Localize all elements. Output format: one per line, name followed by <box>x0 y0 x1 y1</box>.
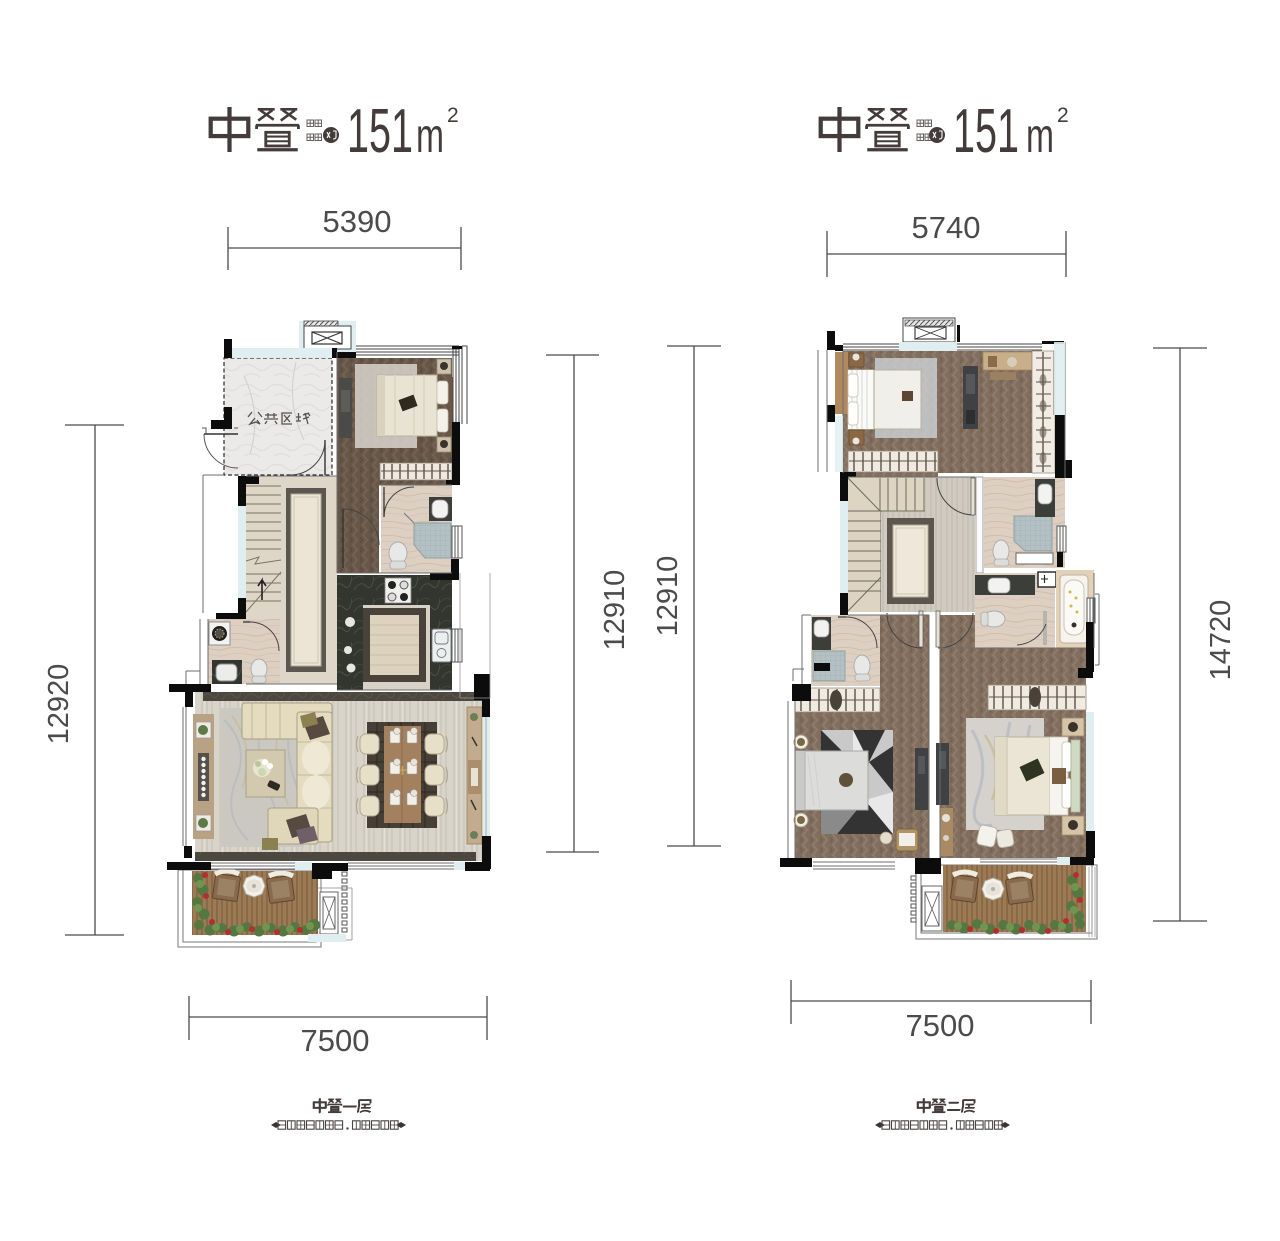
svg-text:m: m <box>1026 110 1054 163</box>
svg-text:7500: 7500 <box>301 1023 370 1058</box>
svg-text:2: 2 <box>1057 104 1069 127</box>
svg-text:14720: 14720 <box>1205 600 1237 681</box>
svg-text:5390: 5390 <box>323 204 392 239</box>
svg-text:m: m <box>416 110 444 163</box>
svg-text:12910: 12910 <box>652 556 684 637</box>
svg-text:2: 2 <box>447 104 459 127</box>
svg-text:151: 151 <box>347 97 413 166</box>
svg-text:7500: 7500 <box>906 1008 975 1043</box>
svg-text:12910: 12910 <box>599 570 631 651</box>
svg-text:5740: 5740 <box>912 210 981 245</box>
svg-text:151: 151 <box>953 97 1019 166</box>
svg-text:12920: 12920 <box>43 664 75 745</box>
